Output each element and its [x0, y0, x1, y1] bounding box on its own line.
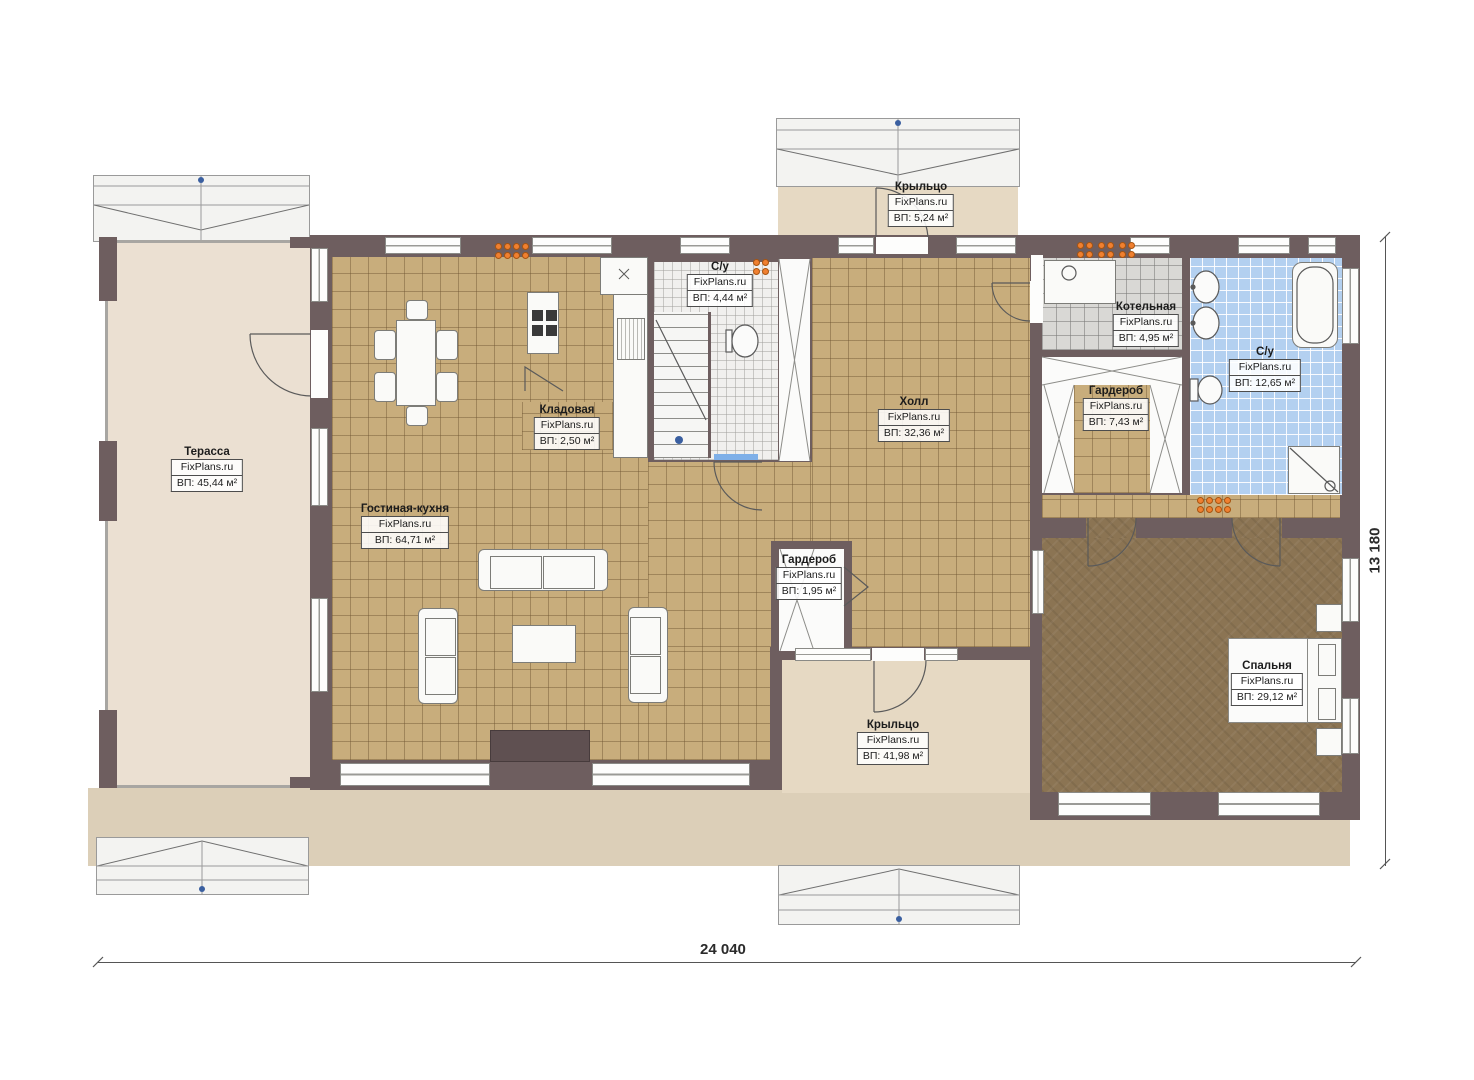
radiator-marker: [1077, 242, 1093, 258]
terrace-post: [99, 710, 117, 788]
roof-lines-icon: [94, 176, 309, 241]
bathtub: [1292, 262, 1338, 348]
brand-tag: FixPlans.ru: [687, 274, 753, 291]
roof-overhang-bottom-center: [778, 865, 1020, 925]
window: [1342, 558, 1359, 622]
room-label-bedroom: Спальня FixPlans.ru ВП: 29,12 м²: [1231, 660, 1303, 706]
window: [1130, 237, 1170, 254]
door-opening-terrace: [311, 330, 328, 398]
loveseat-seat: [425, 618, 456, 656]
window: [311, 598, 328, 692]
window: [385, 237, 461, 254]
radiator-marker: [1098, 242, 1114, 258]
room-area: ВП: 4,44 м²: [687, 291, 753, 307]
room-area: ВП: 64,71 м²: [361, 533, 449, 549]
chair: [406, 406, 428, 426]
window: [956, 237, 1016, 254]
room-label-wc-small: С/у FixPlans.ru ВП: 4,44 м²: [687, 261, 753, 307]
chair: [436, 372, 458, 402]
room-name: Спальня: [1231, 660, 1303, 672]
kitchen-appliance: [600, 257, 648, 295]
hall-closet: [779, 259, 810, 461]
bed-pillow: [1318, 688, 1336, 720]
room-label-porch-top: Крыльцо FixPlans.ru ВП: 5,24 м²: [888, 181, 954, 227]
shower: [1288, 446, 1340, 494]
brand-tag: FixPlans.ru: [1083, 398, 1149, 415]
bedroom-door-opening: [1086, 518, 1136, 538]
terrace-post: [290, 237, 310, 248]
room-area: ВП: 2,50 м²: [534, 434, 600, 450]
nightstand: [1316, 604, 1342, 632]
room-area: ВП: 4,95 м²: [1113, 331, 1179, 347]
dimension-line-right: [1385, 237, 1386, 866]
window: [532, 237, 612, 254]
stove-burner: [532, 325, 543, 336]
brand-tag: FixPlans.ru: [888, 194, 954, 211]
bedroom-door-opening: [1232, 518, 1282, 538]
terrace-post: [99, 237, 117, 301]
radiator-marker: [1197, 497, 1213, 513]
room-area: ВП: 41,98 м²: [857, 749, 929, 765]
room-name: Гардероб: [776, 554, 842, 566]
brand-tag: FixPlans.ru: [171, 459, 243, 476]
window: [680, 237, 730, 254]
window: [592, 763, 750, 786]
dimension-width: 24 040: [700, 941, 746, 958]
fireplace: [490, 730, 590, 762]
brand-tag: FixPlans.ru: [534, 417, 600, 434]
room-name: Крыльцо: [888, 181, 954, 193]
window: [1238, 237, 1290, 254]
room-area: ВП: 1,95 м²: [776, 584, 842, 600]
roof-overhang-top-center: [776, 118, 1020, 187]
chair: [406, 300, 428, 320]
bed-pillow: [1318, 644, 1336, 676]
sofa-seat: [490, 556, 542, 589]
door-opening-porch-bottom: [872, 648, 924, 661]
roof-overhang-top-left: [93, 175, 310, 242]
terrace-edge: [105, 785, 310, 788]
loveseat-seat: [630, 617, 661, 655]
nightstand: [1316, 728, 1342, 756]
room-label-boiler: Котельная FixPlans.ru ВП: 4,95 м²: [1113, 301, 1179, 347]
brand-tag: FixPlans.ru: [361, 516, 449, 533]
radiator-marker: [1215, 497, 1231, 513]
stove-burner: [532, 310, 543, 321]
coffee-table: [512, 625, 576, 663]
floor-plan: Терасса FixPlans.ru ВП: 45,44 м² Крыльцо…: [0, 0, 1474, 1080]
corridor-strip-floor: [1042, 495, 1340, 518]
room-area: ВП: 7,43 м²: [1083, 415, 1149, 431]
room-name: Кладовая: [534, 404, 600, 416]
window: [340, 763, 490, 786]
room-label-wardrobe-small: Гардероб FixPlans.ru ВП: 1,95 м²: [776, 554, 842, 600]
room-name: Гардероб: [1083, 385, 1149, 397]
room-label-wc-big: С/у FixPlans.ru ВП: 12,65 м²: [1229, 346, 1301, 392]
chair: [374, 330, 396, 360]
terrace-post: [290, 777, 310, 788]
stair-bath-partition: [708, 312, 711, 458]
room-label-hall: Холл FixPlans.ru ВП: 32,36 м²: [878, 396, 950, 442]
window: [1218, 792, 1320, 816]
window: [311, 248, 328, 302]
window: [311, 428, 328, 506]
window: [1342, 698, 1359, 754]
window: [925, 648, 958, 661]
roof-overhang-bottom-left: [96, 837, 309, 895]
terrace-post: [99, 441, 117, 521]
door-opening-hall: [1030, 281, 1043, 323]
dining-table: [396, 320, 436, 406]
roof-lines-icon: [97, 838, 308, 894]
staircase: [654, 312, 708, 458]
room-label-porch-bottom: Крыльцо FixPlans.ru ВП: 41,98 м²: [857, 719, 929, 765]
room-label-terrace: Терасса FixPlans.ru ВП: 45,44 м²: [171, 446, 243, 492]
terrace-floor: [105, 240, 310, 788]
room-name: Гостиная-кухня: [361, 503, 449, 515]
kitchen-island-stove: [527, 292, 559, 354]
radiator-marker: [513, 243, 529, 259]
kitchen-sink: [617, 318, 645, 360]
brand-tag: FixPlans.ru: [776, 567, 842, 584]
brand-tag: FixPlans.ru: [1231, 673, 1303, 690]
window-sill-blue: [714, 454, 758, 460]
radiator-marker: [495, 243, 511, 259]
room-name: С/у: [1229, 346, 1301, 358]
stove-burner: [546, 325, 557, 336]
loveseat-seat: [630, 656, 661, 694]
window: [838, 237, 874, 254]
brand-tag: FixPlans.ru: [1229, 359, 1301, 376]
brand-tag: FixPlans.ru: [1113, 314, 1179, 331]
room-area: ВП: 32,36 м²: [878, 426, 950, 442]
brand-tag: FixPlans.ru: [878, 409, 950, 426]
brand-tag: FixPlans.ru: [857, 732, 929, 749]
room-name: Котельная: [1113, 301, 1179, 313]
window: [1308, 237, 1336, 254]
chair: [436, 330, 458, 360]
room-label-wardrobe: Гардероб FixPlans.ru ВП: 7,43 м²: [1083, 385, 1149, 431]
door-opening-porch-top: [876, 237, 928, 254]
room-name: Холл: [878, 396, 950, 408]
dimension-height: 13 180: [1366, 528, 1383, 574]
room-area: ВП: 29,12 м²: [1231, 690, 1303, 706]
dimension-line-bottom: [98, 962, 1356, 963]
room-area: ВП: 45,44 м²: [171, 476, 243, 492]
sofa-seat: [543, 556, 595, 589]
room-name: Терасса: [171, 446, 243, 458]
window: [795, 648, 871, 661]
window: [1342, 268, 1359, 344]
radiator-marker: [1119, 242, 1135, 258]
boiler-counter: [1044, 260, 1116, 304]
room-label-pantry: Кладовая FixPlans.ru ВП: 2,50 м²: [534, 404, 600, 450]
roof-lines-icon: [777, 119, 1019, 186]
terrace-edge: [105, 240, 310, 243]
stove-burner: [546, 310, 557, 321]
loveseat-seat: [425, 657, 456, 695]
window: [1032, 550, 1044, 614]
chair: [374, 372, 396, 402]
roof-lines-icon: [779, 866, 1019, 924]
room-name: С/у: [687, 261, 753, 273]
radiator-marker: [753, 259, 769, 275]
room-area: ВП: 12,65 м²: [1229, 376, 1301, 392]
room-area: ВП: 5,24 м²: [888, 211, 954, 227]
room-name: Крыльцо: [857, 719, 929, 731]
window: [1058, 792, 1151, 816]
room-label-living-kitchen: Гостиная-кухня FixPlans.ru ВП: 64,71 м²: [361, 503, 449, 549]
